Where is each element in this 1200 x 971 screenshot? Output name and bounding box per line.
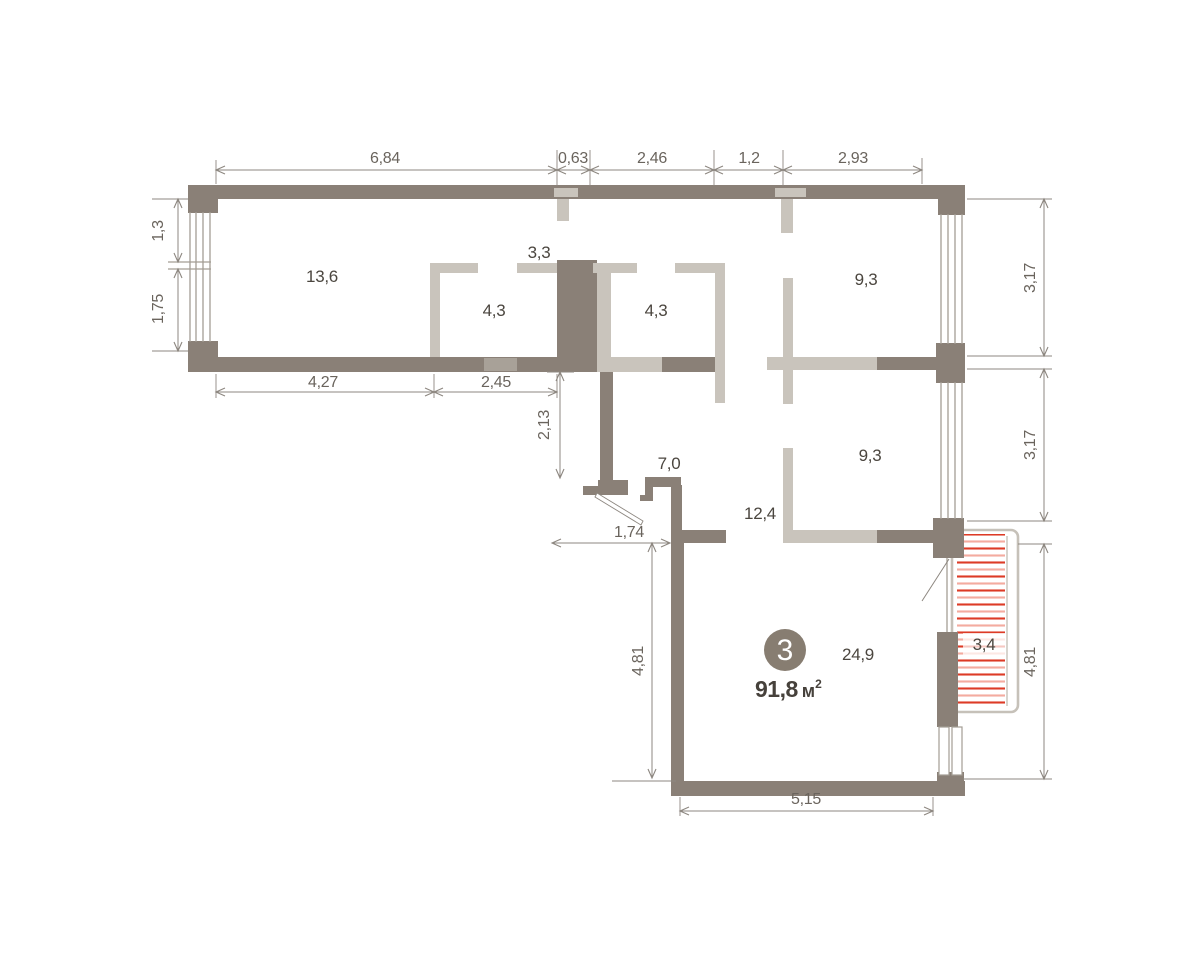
- dim-top-12: 1,2: [738, 150, 760, 167]
- dim-wing-427: 4,27: [308, 374, 338, 391]
- window-right-lower: [941, 382, 962, 519]
- dim-mid-213: 2,13: [536, 410, 553, 440]
- dim-right-317b: 3,17: [1022, 430, 1039, 460]
- room-label-136: 13,6: [306, 267, 338, 286]
- dim-top-684: 6,84: [370, 150, 400, 167]
- room-label-43b: 4,3: [645, 301, 668, 320]
- dim-lowerleft-481: 4,81: [630, 646, 647, 676]
- total-area-unit-sup: 2: [815, 677, 822, 691]
- window-right-upper: [941, 214, 962, 344]
- room-label-34: 3,4: [973, 635, 996, 654]
- room-label-124: 12,4: [744, 504, 776, 523]
- room-label-43a: 4,3: [483, 301, 506, 320]
- dim-wing-245: 2,45: [481, 374, 511, 391]
- dim-door-174: 1,74: [614, 524, 644, 541]
- floor-plan-canvas: 6,84 0,63 2,46 1,2 2,93 1,3 1,75 4,27 2,…: [0, 0, 1200, 971]
- window-left: [168, 212, 211, 342]
- room-labels: 13,6 3,3 4,3 4,3 9,3 9,3 12,4 7,0 24,9 3…: [306, 243, 1005, 664]
- dim-left-13: 1,3: [150, 220, 167, 242]
- room-label-249: 24,9: [842, 645, 874, 664]
- corridor-door-leaf: [595, 493, 643, 525]
- balcony-hatch: [957, 534, 1005, 708]
- room-label-93b: 9,3: [859, 446, 882, 465]
- dim-left-175: 1,75: [150, 294, 167, 324]
- unit-badge: 3 91,8м2: [755, 629, 822, 702]
- unit-number: 3: [777, 634, 794, 667]
- dim-right-481: 4,81: [1022, 647, 1039, 677]
- balcony-door-leaf: [922, 559, 949, 601]
- dim-bottom-515: 5,15: [791, 791, 821, 808]
- total-area: 91,8м2: [755, 676, 822, 702]
- total-area-unit: м: [802, 681, 815, 701]
- room-label-33: 3,3: [528, 243, 551, 262]
- dim-right-317a: 3,17: [1022, 263, 1039, 293]
- room-label-93a: 9,3: [855, 270, 878, 289]
- window-bottom-right: [939, 727, 962, 775]
- dim-top-246: 2,46: [637, 150, 667, 167]
- dim-top-293: 2,93: [838, 150, 868, 167]
- floor-plan: 6,84 0,63 2,46 1,2 2,93 1,3 1,75 4,27 2,…: [0, 0, 1200, 971]
- dim-top-063: 0,63: [558, 150, 588, 167]
- dimension-labels: 6,84 0,63 2,46 1,2 2,93 1,3 1,75 4,27 2,…: [150, 150, 1039, 808]
- walls-light: [430, 188, 877, 543]
- total-area-value: 91,8: [755, 676, 798, 702]
- room-label-70: 7,0: [658, 454, 681, 473]
- walls-dark: [188, 185, 965, 796]
